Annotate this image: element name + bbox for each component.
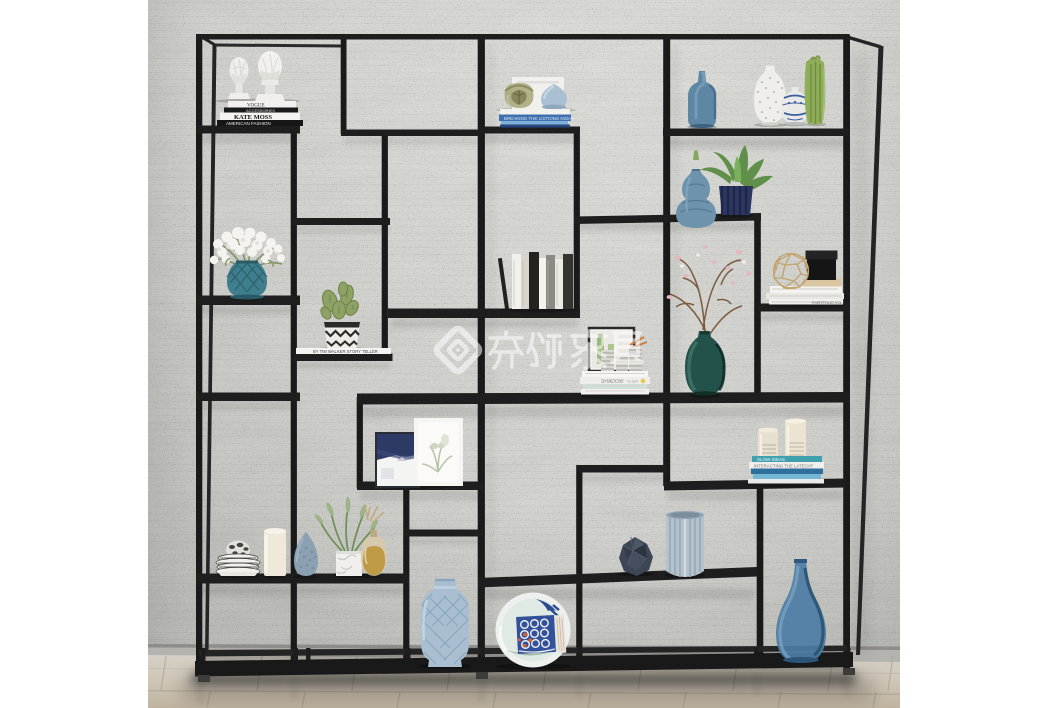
svg-text:BREAKING THE LISTIONS NIGHT: BREAKING THE LISTIONS NIGHT (504, 116, 575, 121)
svg-text:INTERACTING THE LATECHT: INTERACTING THE LATECHT (754, 463, 814, 468)
svg-text:AMERICAN FASHION: AMERICAN FASHION (226, 121, 271, 126)
svg-text:KATE MOSS: KATE MOSS (234, 114, 272, 121)
svg-text:SLOW IDEAS: SLOW IDEAS (757, 457, 785, 462)
svg-text:PORTFOLIO VOL: PORTFOLIO VOL (812, 301, 843, 305)
svg-text:ACCESSORIES: ACCESSORIES (246, 108, 275, 113)
svg-text:by light: by light (627, 380, 638, 384)
svg-text:BY TIM WALKER STORY TELLER: BY TIM WALKER STORY TELLER (313, 349, 378, 354)
